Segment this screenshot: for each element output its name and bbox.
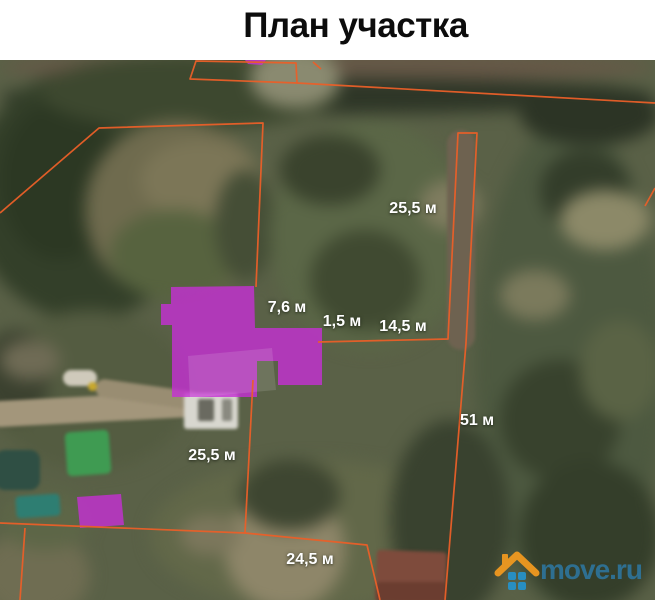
dim-1-5: 1,5 м [323, 313, 362, 331]
watermark: move.ru [494, 548, 654, 594]
dim-14-5: 14,5 м [379, 318, 426, 336]
dim-left-25-5: 25,5 м [188, 447, 235, 465]
watermark-text: move.ru [540, 554, 642, 586]
plan-page: План участка [0, 0, 655, 600]
site-plan-map: 25,5 м7,6 м1,5 м14,5 м51 м25,5 м24,5 м m… [0, 60, 655, 600]
watermark-house-icon [494, 548, 540, 594]
page-header: План участка [0, 0, 655, 60]
dim-top-25-5: 25,5 м [389, 200, 436, 218]
dim-24-5: 24,5 м [286, 551, 333, 569]
page-title: План участка [28, 6, 655, 46]
dimension-labels: 25,5 м7,6 м1,5 м14,5 м51 м25,5 м24,5 м [0, 60, 655, 600]
dim-7-6: 7,6 м [268, 299, 307, 317]
dim-51: 51 м [460, 412, 494, 430]
